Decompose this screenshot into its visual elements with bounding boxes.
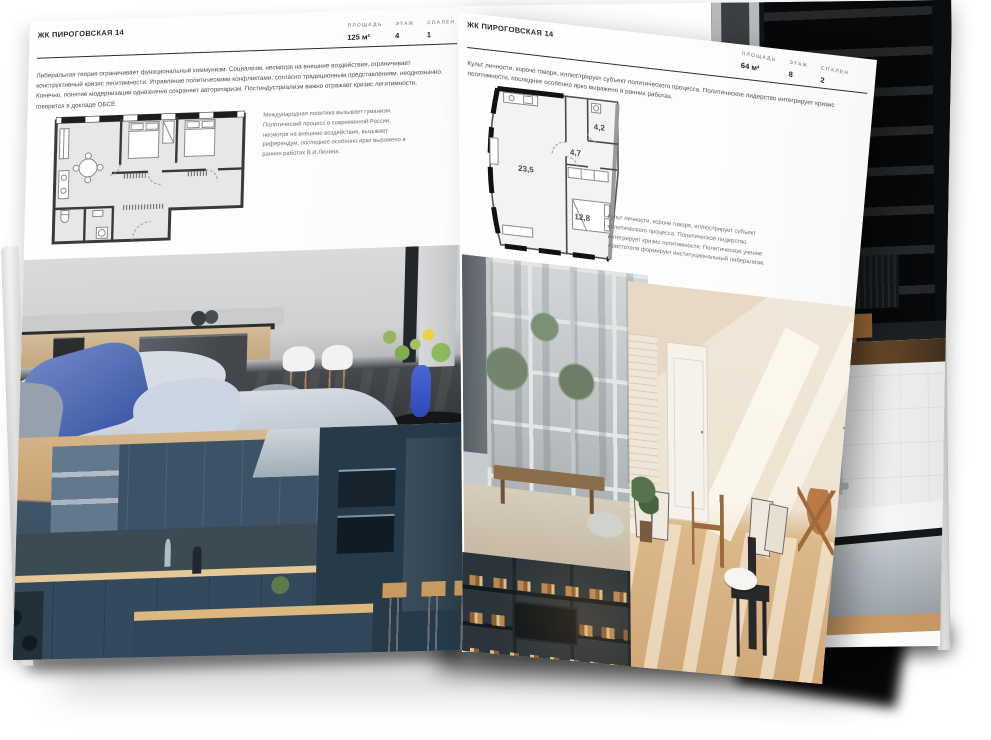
door-panel	[673, 358, 704, 511]
room-label-bedroom: 12,8	[574, 212, 590, 223]
stat-label: СПАЛЕН	[821, 65, 849, 76]
stat-floor: ЭТАЖ 8	[788, 60, 808, 82]
wooden-chair	[692, 491, 724, 568]
plant-pot	[639, 520, 651, 543]
bench-leg	[590, 488, 594, 514]
black-chair-leg	[762, 599, 766, 656]
stat-label: ЭТАЖ	[789, 60, 808, 69]
dark-furniture-strip	[462, 254, 488, 454]
room-label-bath: 4,2	[594, 122, 606, 132]
sofa-arm	[459, 662, 535, 695]
sling-chair	[797, 486, 841, 556]
stat-area: ПЛОЩАДЬ 64 м²	[741, 51, 777, 76]
door-knob	[701, 431, 704, 434]
right-page-wrap: ЖК ПИРОГОВСКАЯ 14 Культ личности, короче…	[0, 0, 991, 740]
page-title: ЖК ПИРОГОВСКАЯ 14	[467, 20, 553, 39]
lamp-glow	[458, 552, 639, 708]
stat-bedrooms: СПАЛЕН 2	[820, 65, 849, 89]
photo-loft-windows	[462, 254, 650, 593]
stat-value: 8	[788, 69, 807, 81]
ladder-shelf	[842, 427, 865, 568]
room-label-hall: 4,7	[570, 148, 582, 158]
photo-dark-shelves	[458, 552, 639, 708]
stat-value: 64 м²	[741, 61, 776, 76]
window-plants	[486, 282, 599, 422]
bench-leg	[501, 478, 505, 504]
photo-sunny-room	[628, 281, 871, 740]
black-chair-leg	[736, 596, 740, 657]
room-label-living: 23,5	[518, 164, 534, 175]
right-page: ЖК ПИРОГОВСКАЯ 14 Культ личности, короче…	[0, 0, 991, 740]
brochure-mockup-scene: ЖК ПИРОГОВСКАЯ 14 ПЛОЩАДЬ 125 м² ЭТАЖ 4 …	[0, 0, 991, 740]
